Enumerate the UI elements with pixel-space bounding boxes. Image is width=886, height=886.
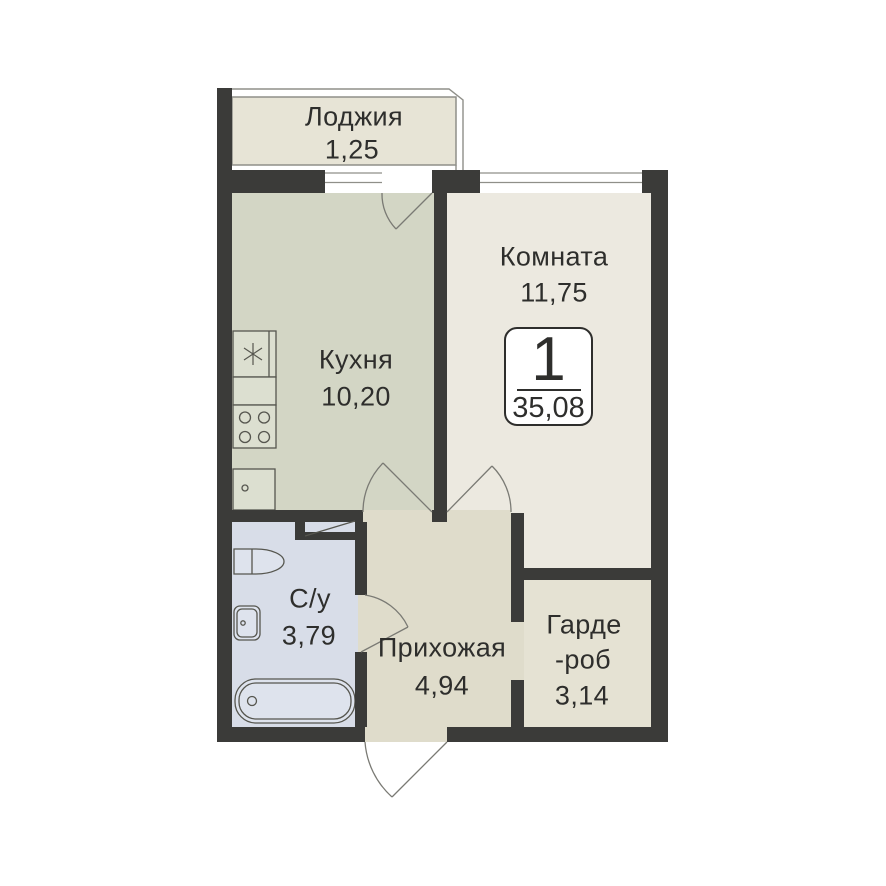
windows: [325, 170, 642, 193]
apartment-badge: 1 35,08: [504, 327, 593, 426]
kitchen-counter-icon: [233, 377, 276, 405]
wall-right: [651, 170, 668, 742]
wardrobe-area: 3,14: [555, 683, 609, 710]
hallway-entry-gap: [365, 727, 447, 742]
room-window: [480, 170, 642, 193]
floor-plan: Лоджия 1,25 Комната 11,75 Кухня 10,20 С/…: [0, 0, 886, 886]
wall-hallway-right-b: [511, 680, 524, 727]
room-area: 11,75: [520, 280, 588, 307]
loggia-name: Лоджия: [305, 104, 403, 131]
balcony-door-opening: [382, 170, 432, 193]
wall-vent-stub: [295, 520, 305, 540]
bathroom-area: 3,79: [282, 623, 336, 650]
stove-icon: [233, 405, 276, 448]
kitchen-window: [325, 170, 382, 193]
wardrobe-door-gap: [511, 622, 524, 680]
washbasin-icon: [234, 606, 260, 640]
hallway-name: Прихожая: [378, 635, 506, 662]
wardrobe-name-line2: -роб: [555, 647, 611, 674]
kitchen-fixtures: [233, 331, 276, 510]
badge-divider: [517, 389, 581, 391]
kitchen-name: Кухня: [319, 347, 393, 374]
wall-kitchen-room: [434, 193, 447, 522]
kitchen-vent-box-icon: [233, 331, 276, 377]
wall-bathroom-right-b: [355, 652, 367, 727]
wall-top-b: [432, 170, 480, 193]
wall-top-a: [217, 170, 325, 193]
wall-bottom-b: [447, 727, 668, 742]
wardrobe-name-line1: Гарде: [546, 612, 621, 639]
kitchen-sink-icon: [233, 469, 275, 510]
entrance-door-arc: [365, 742, 447, 797]
wall-bathroom-top: [217, 510, 363, 522]
wall-hallway-right-a: [511, 513, 524, 622]
wall-room-wardrobe: [524, 568, 651, 580]
room-name: Комната: [500, 244, 609, 271]
floor-plan-drawing: [0, 0, 886, 886]
wall-stub-kitchen-door: [432, 510, 447, 522]
kitchen-area: 10,20: [321, 384, 391, 411]
loggia-area: 1,25: [325, 137, 379, 164]
toilet-icon: [234, 549, 284, 574]
apartment-number: 1: [531, 331, 565, 388]
bathroom-name: С/у: [289, 586, 331, 613]
hallway-area: 4,94: [415, 673, 469, 700]
wall-bottom-a: [217, 727, 365, 742]
bathtub-icon: [235, 679, 355, 723]
apartment-total-area: 35,08: [512, 393, 585, 423]
